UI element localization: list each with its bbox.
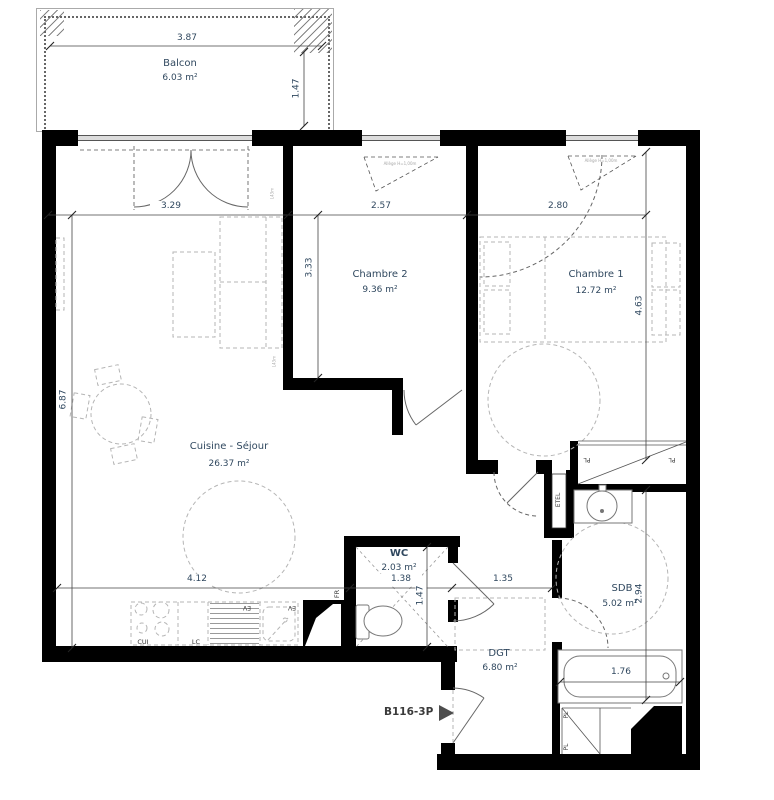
wall-bottom-left xyxy=(42,646,457,662)
room-label-wc: WC xyxy=(354,548,444,560)
closet-label-2: PL xyxy=(662,455,682,463)
wall-sdb-left-lower xyxy=(552,648,560,754)
unit-label: B116-3P xyxy=(384,706,436,718)
wall-basin-top xyxy=(568,484,686,492)
window-chambre2 xyxy=(362,130,440,146)
balcony-separator-hatch-left xyxy=(40,10,64,36)
wall-wc-corner xyxy=(430,647,457,662)
wall-chambre2-south xyxy=(283,378,403,390)
closet-label-3: PL xyxy=(563,705,571,725)
wall-etel-bottom xyxy=(544,528,574,538)
window-note-chambre1: Allège H=1,00m xyxy=(579,158,623,163)
wall-hall-stub xyxy=(392,378,403,435)
floor-plan: Balcon 6.03 m² xyxy=(0,0,774,800)
room-area-chambre1: 12.72 m² xyxy=(551,285,641,297)
dim-balcony-width: 3.87 xyxy=(166,33,208,44)
wall-entrance-bottom xyxy=(441,743,455,755)
room-area-sdb: 5.02 m² xyxy=(575,598,665,610)
wall-entrance-top xyxy=(441,662,455,690)
sink-label-1: EV xyxy=(237,603,257,611)
wall-chambre1-south-east xyxy=(536,460,552,474)
wall-sejour-chambre2 xyxy=(283,146,293,386)
wall-chambre2-chambre1 xyxy=(466,146,478,472)
wall-top-3 xyxy=(440,130,566,146)
room-label-chambre2: Chambre 2 xyxy=(335,269,425,281)
wall-left xyxy=(42,130,56,662)
room-area-wc: 2.03 m² xyxy=(354,562,444,574)
room-label-balcon: Balcon xyxy=(135,58,225,70)
etel-label: ETEL xyxy=(555,482,563,518)
dim-wc-height: 1.47 xyxy=(416,580,427,612)
room-area-dgt: 6.80 m² xyxy=(455,662,545,674)
wall-chambre1-south-west xyxy=(466,460,498,474)
dim-kitchen-width: 4.12 xyxy=(176,574,218,585)
wall-right xyxy=(686,130,700,770)
stove-label: CUI xyxy=(131,638,155,646)
room-label-sejour: Cuisine - Séjour xyxy=(169,441,289,453)
room-label-chambre1: Chambre 1 xyxy=(551,269,641,281)
washer-label: LC xyxy=(184,638,208,646)
wall-note-1: L43m xyxy=(270,184,275,204)
closet-label-1: PL xyxy=(577,455,597,463)
dim-chambre2-height: 3.33 xyxy=(305,252,316,284)
dim-bath-width: 1.76 xyxy=(600,667,642,678)
wall-wc-right-stub-bottom xyxy=(448,600,458,622)
window-sejour xyxy=(78,130,252,146)
balcony-separator-hatch-right xyxy=(294,9,332,53)
dim-chambre1-width: 2.80 xyxy=(537,201,579,212)
room-area-balcon: 6.03 m² xyxy=(135,72,225,84)
room-label-sdb: SDB xyxy=(577,583,667,595)
wall-top-2 xyxy=(252,130,362,146)
wall-wc-right-stub-top xyxy=(448,547,458,563)
closet-label-4: PL xyxy=(563,737,571,757)
window-note-chambre2: Allège H=1,00m xyxy=(378,161,422,166)
window-chambre1 xyxy=(566,130,638,146)
wall-wc-top xyxy=(344,536,460,547)
dim-sejour-height: 6.87 xyxy=(59,384,70,416)
sink-label-2: EV xyxy=(282,603,302,611)
wall-sdb-left-upper xyxy=(552,540,562,598)
dim-balcony-depth: 1.47 xyxy=(292,73,303,105)
room-area-sejour: 26.37 m² xyxy=(169,458,289,470)
wall-note-2: L43m xyxy=(272,352,277,372)
room-area-chambre2: 9.36 m² xyxy=(335,284,425,296)
wall-etel-left xyxy=(544,474,552,534)
dim-chambre2-width: 2.57 xyxy=(360,201,402,212)
dim-sejour-window: 3.29 xyxy=(150,201,192,212)
entrance-arrow-icon xyxy=(439,705,454,721)
room-label-dgt: DGT xyxy=(454,648,544,660)
fridge-label: FR xyxy=(333,584,341,604)
dim-hall-width: 1.35 xyxy=(482,574,524,585)
